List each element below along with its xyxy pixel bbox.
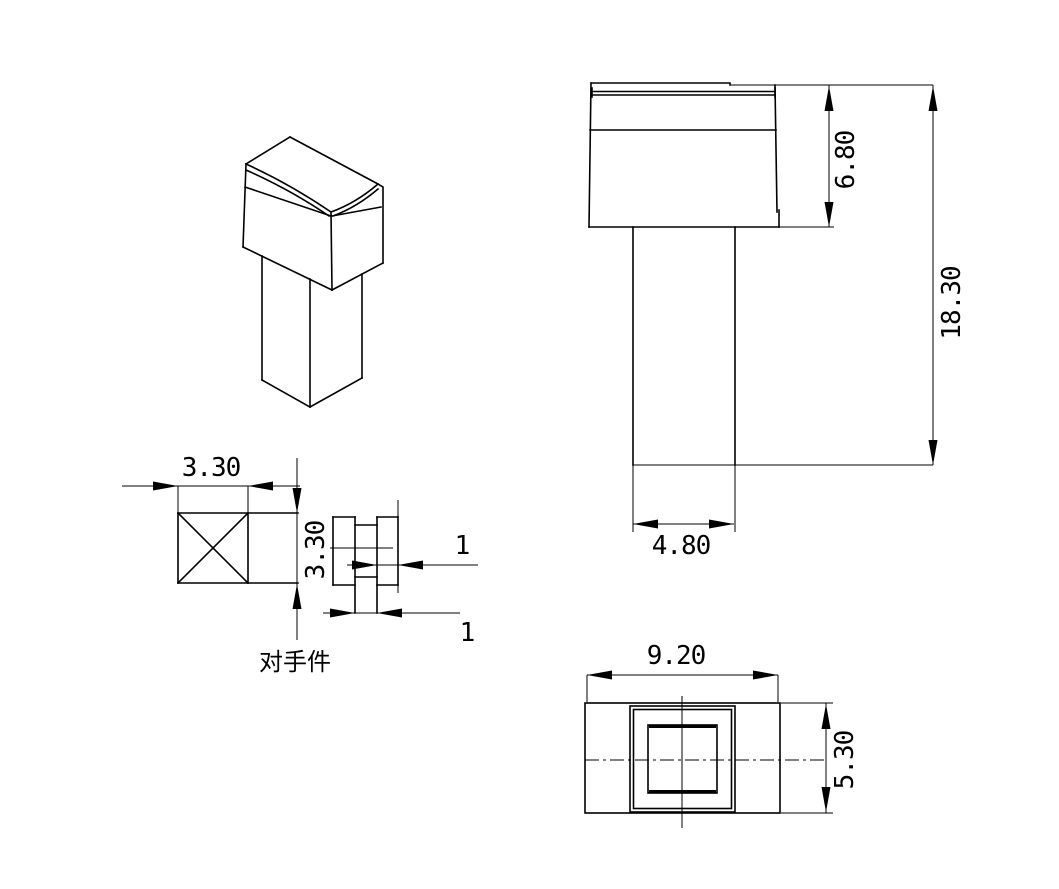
dim-text-top-width: 9.20 — [647, 641, 706, 671]
arrowhead — [633, 520, 658, 529]
isometric-view — [243, 137, 383, 407]
dimension-total-height: 18.30 — [633, 85, 967, 465]
arrowhead — [398, 561, 423, 570]
dim-text-shaft-width: 4.80 — [652, 531, 711, 561]
dimension-stem-width: 1 — [323, 609, 474, 649]
arrowhead — [929, 86, 938, 111]
arrowhead — [822, 787, 831, 812]
front-view-head-outline — [589, 83, 779, 227]
dimension-rib-width: 1 — [347, 531, 478, 570]
section-view: 3.30 3.30 1 — [122, 453, 478, 676]
dimension-head-height: 6.80 — [730, 85, 933, 227]
arrowhead — [330, 609, 355, 618]
top-view-outline — [585, 696, 827, 828]
mating-part-profile — [330, 500, 398, 613]
dimension-top-depth: 5.30 — [781, 703, 860, 813]
arrowhead — [153, 482, 178, 491]
arrowhead — [293, 488, 302, 513]
engineering-drawing: 6.80 18.30 4.80 — [0, 0, 1059, 889]
dim-text-section-height: 3.30 — [301, 521, 331, 580]
isometric-head — [243, 137, 383, 290]
dimension-section-width: 3.30 — [122, 453, 300, 512]
arrowhead — [587, 671, 612, 680]
front-view-shaft-outline — [633, 227, 735, 465]
dimension-shaft-width: 4.80 — [633, 465, 735, 561]
dim-text-head-height: 6.80 — [831, 131, 861, 190]
arrowhead — [822, 704, 831, 729]
arrowhead — [825, 86, 834, 111]
dim-text-stem-width: 1 — [460, 618, 475, 648]
dimension-top-width: 9.20 — [587, 641, 778, 702]
arrowhead — [248, 482, 273, 491]
dim-text-section-width: 3.30 — [182, 453, 241, 483]
dim-text-total-height: 18.30 — [937, 266, 967, 339]
arrowhead — [753, 671, 778, 680]
section-square-outline — [178, 513, 298, 583]
arrowhead — [352, 561, 377, 570]
arrowhead — [929, 440, 938, 465]
arrowhead — [293, 584, 302, 609]
dim-text-rib-width: 1 — [455, 531, 470, 561]
arrowhead — [709, 520, 734, 529]
top-view: 9.20 5.30 — [585, 641, 860, 828]
isometric-shaft — [262, 256, 362, 407]
front-view: 6.80 18.30 4.80 — [589, 83, 967, 561]
arrowhead — [377, 609, 402, 618]
arrowhead — [825, 202, 834, 227]
mating-part-label: 对手件 — [259, 648, 331, 676]
dim-text-top-depth: 5.30 — [830, 731, 860, 790]
